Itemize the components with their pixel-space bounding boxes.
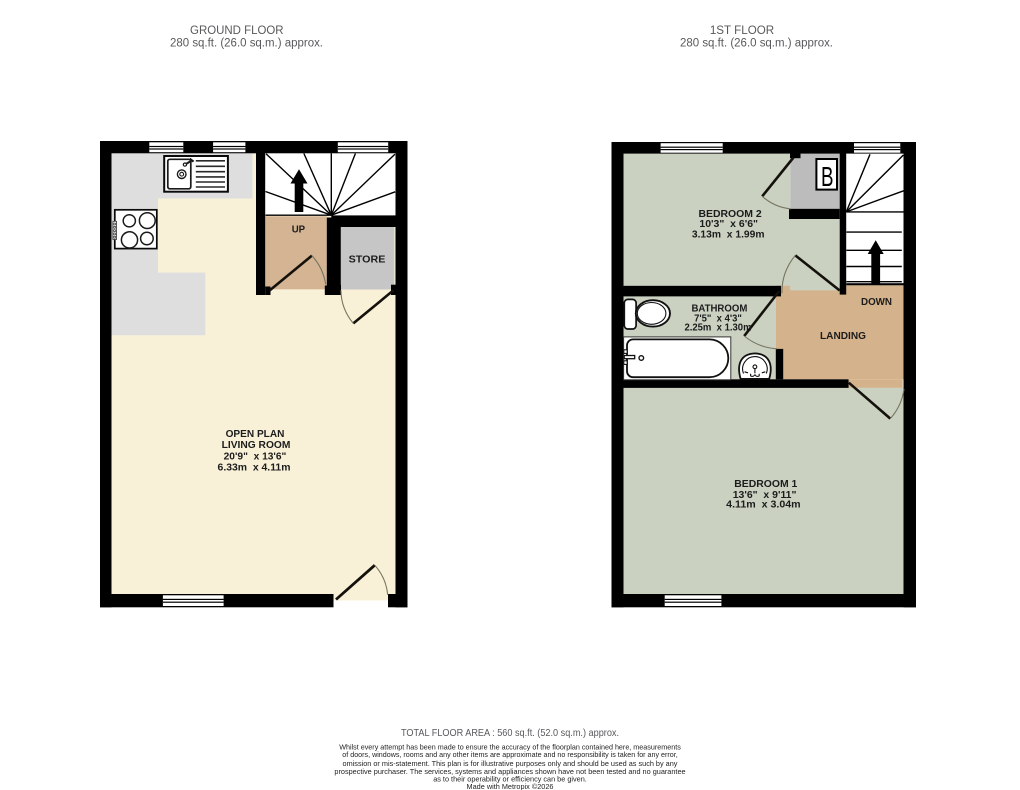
svg-text:STORE: STORE [349,253,386,265]
svg-text:3.13m x 1.99m: 3.13m x 1.99m [692,228,765,240]
svg-text:2.25m x 1.30m: 2.25m x 1.30m [684,322,751,334]
svg-text:of doors, windows, rooms and a: of doors, windows, rooms and any other i… [342,750,677,759]
svg-text:UP: UP [292,224,305,236]
svg-text:LANDING: LANDING [820,330,866,342]
svg-text:280 sq.ft. (26.0 sq.m.) approx: 280 sq.ft. (26.0 sq.m.) approx. [170,38,323,50]
svg-text:LIVING ROOM: LIVING ROOM [222,439,291,451]
svg-text:4.11m x 3.04m: 4.11m x 3.04m [726,499,800,511]
svg-text:Made with Metropix ©2026: Made with Metropix ©2026 [467,782,554,790]
svg-text:1ST FLOOR: 1ST FLOOR [710,25,774,37]
svg-text:TOTAL FLOOR AREA : 560 sq.ft.: TOTAL FLOOR AREA : 560 sq.ft. (52.0 sq.m… [401,728,619,739]
svg-text:6.33m x 4.11m: 6.33m x 4.11m [218,462,291,474]
svg-text:280 sq.ft. (26.0 sq.m.) approx: 280 sq.ft. (26.0 sq.m.) approx. [680,38,833,50]
svg-text:DOWN: DOWN [861,296,892,308]
svg-text:GROUND FLOOR: GROUND FLOOR [190,25,284,37]
svg-text:B: B [821,161,834,192]
